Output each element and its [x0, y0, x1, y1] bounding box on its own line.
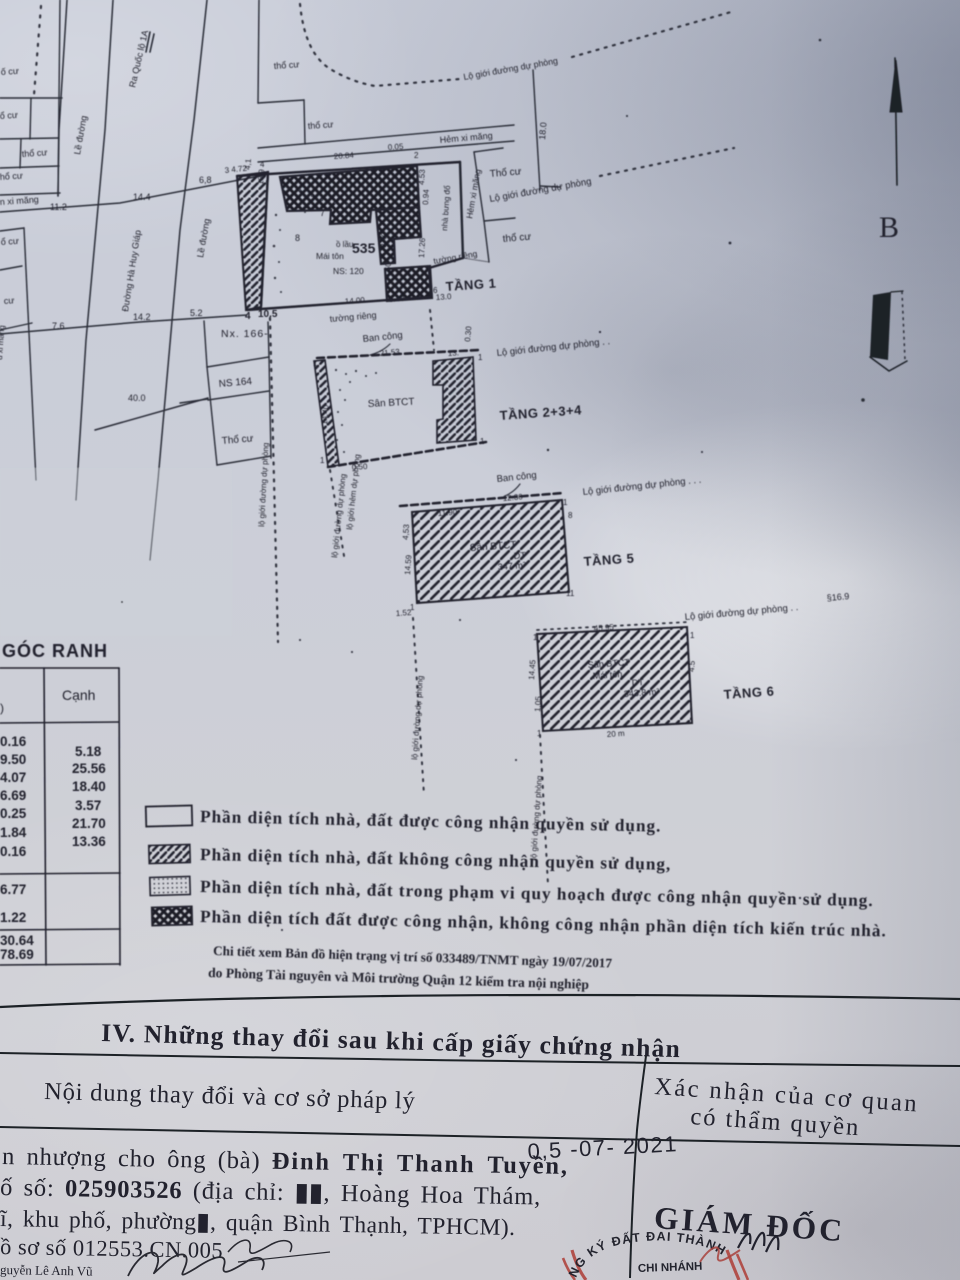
- svg-text:n nhượng cho ông (bà) Đinh Thị: n nhượng cho ông (bà) Đinh Thị Thanh Tuy…: [2, 1143, 569, 1180]
- svg-text:5.18: 5.18: [75, 744, 102, 759]
- svg-text:ổ cư: ổ cư: [0, 110, 18, 121]
- svg-text:4.50: 4.50: [383, 262, 393, 279]
- svg-text:NS: 120: NS: 120: [333, 266, 364, 276]
- svg-text:17.26: 17.26: [417, 237, 427, 258]
- svg-text:0.25: 0.25: [0, 806, 27, 821]
- svg-text:5.2: 5.2: [190, 308, 203, 318]
- svg-text:0.16: 0.16: [0, 734, 27, 749]
- svg-text:535: 535: [352, 240, 376, 256]
- svg-text:11.90: 11.90: [438, 508, 459, 518]
- svg-text:TẦNG 5: TẦNG 5: [583, 550, 635, 568]
- svg-text:2: 2: [414, 151, 419, 160]
- svg-text:30.64: 30.64: [0, 933, 34, 948]
- svg-text:4,1: 4,1: [243, 158, 253, 170]
- svg-text:Cạnh: Cạnh: [62, 687, 95, 703]
- svg-text:4: 4: [260, 160, 265, 169]
- svg-text:thổ cư: thổ cư: [307, 119, 333, 131]
- svg-text:Lộ giới đường dự phòng . . .: Lộ giới đường dự phòng . . .: [582, 475, 702, 498]
- svg-text:nhà bưng đổ: nhà bưng đổ: [440, 185, 452, 231]
- svg-text:CHI NHÁNH: CHI NHÁNH: [638, 1260, 703, 1275]
- svg-text:ồ lầu: ồ lầu: [336, 240, 353, 249]
- svg-text:Lộ giới đường dự phòng . .: Lộ giới đường dự phòng . .: [684, 602, 798, 623]
- svg-text:1: 1: [313, 359, 318, 368]
- svg-text:§16.9: §16.9: [826, 591, 849, 603]
- svg-text:Phần diện tích đất được công n: Phần diện tích đất được công nhận, không…: [200, 907, 887, 940]
- svg-text:): ): [0, 701, 4, 715]
- svg-text:Phần diện tích nhà, đất được c: Phần diện tích nhà, đất được công nhận q…: [200, 807, 662, 836]
- svg-text:thổ cư: thổ cư: [502, 231, 532, 245]
- svg-text:6.77: 6.77: [0, 882, 26, 897]
- svg-text:18.40: 18.40: [72, 779, 106, 794]
- svg-text:ổ cư: ổ cư: [0, 236, 19, 247]
- svg-text:14.00: 14.00: [345, 296, 366, 306]
- svg-text:do Phòng Tài nguyên và Môi trư: do Phòng Tài nguyên và Môi trường Quận 1…: [208, 965, 590, 992]
- svg-text:21.53: 21.53: [379, 347, 400, 358]
- svg-text:1: 1: [478, 353, 483, 362]
- svg-text:lộ giới đường dự phòng: lộ giới đường dự phòng: [410, 675, 425, 760]
- svg-text:Thổ cư: Thổ cư: [221, 432, 254, 447]
- svg-text:Lề đường: Lề đường: [72, 115, 89, 156]
- svg-text:7.6: 7.6: [52, 321, 65, 331]
- svg-text:Phần diện tích nhà, đất không: Phần diện tích nhà, đất không công nhận …: [200, 845, 672, 874]
- svg-text:Mái tôn: Mái tôn: [316, 251, 344, 261]
- svg-text:0.05: 0.05: [388, 142, 405, 152]
- svg-text:1.05: 1.05: [533, 695, 543, 712]
- svg-text:Ban công: Ban công: [496, 470, 537, 485]
- svg-text:1: 1: [563, 498, 568, 507]
- svg-text:0.30: 0.30: [463, 325, 473, 342]
- svg-text:Ban công: Ban công: [362, 330, 403, 345]
- svg-text:ố cư: ố cư: [0, 66, 19, 77]
- svg-text:8: 8: [295, 233, 300, 243]
- svg-text:đ xi măng: đ xi măng: [0, 325, 6, 360]
- svg-text:1: 1: [690, 631, 695, 640]
- svg-text:14.4: 14.4: [133, 192, 151, 202]
- svg-text:13.: 13.: [448, 348, 460, 358]
- svg-text:25.56: 25.56: [72, 761, 106, 776]
- svg-text:14.2: 14.2: [133, 312, 151, 322]
- svg-text:1: 1: [320, 456, 325, 465]
- svg-text:guyễn Lê Anh Vũ: guyễn Lê Anh Vũ: [0, 1262, 93, 1279]
- svg-text:GÓC RANH: GÓC RANH: [2, 640, 108, 661]
- svg-text:14.40: 14.40: [320, 404, 330, 425]
- svg-text:thổ cư: thổ cư: [21, 147, 47, 159]
- svg-text:TẦNG 2+3+4: TẦNG 2+3+4: [499, 402, 582, 423]
- svg-text:0,5 -07- 2021: 0,5 -07- 2021: [527, 1131, 678, 1164]
- svg-text:Sân BTCT: Sân BTCT: [368, 397, 415, 410]
- svg-text:10.5: 10.5: [258, 309, 278, 320]
- svg-text:1: 1: [480, 437, 485, 446]
- svg-text:cư: cư: [3, 295, 14, 306]
- svg-text:Nx. 166-: Nx. 166-: [221, 328, 269, 340]
- svg-text:ố số: 025903526 (địa chỉ: ▮▮,: ố số: 025903526 (địa chỉ: ▮▮, Hoàng Hoa …: [0, 1174, 541, 1210]
- svg-text:Nội dung thay đổi và cơ sở phá: Nội dung thay đổi và cơ sở pháp lý: [44, 1078, 416, 1115]
- svg-text:4.5: 4.5: [687, 660, 697, 672]
- svg-text:Lề đường: Lề đường: [195, 218, 212, 259]
- svg-text:1.52: 1.52: [396, 608, 413, 618]
- svg-text:lộ giới đường dự phòng: lộ giới đường dự phòng: [257, 442, 270, 527]
- svg-text:0.94: 0.94: [421, 189, 431, 206]
- svg-text:0.16: 0.16: [0, 844, 27, 859]
- svg-text:21.70: 21.70: [72, 816, 106, 831]
- svg-text:3.40: 3.40: [379, 232, 389, 249]
- svg-text:thổ cư: thổ cư: [273, 59, 299, 71]
- svg-text:n xi măng: n xi măng: [0, 194, 39, 207]
- svg-text:DT: DT: [631, 677, 644, 688]
- svg-text:1.84: 1.84: [0, 825, 27, 840]
- svg-text:1: 1: [533, 633, 538, 642]
- svg-text:40.0: 40.0: [128, 393, 146, 403]
- svg-text:Lộ giới đường dự phòng . .: Lộ giới đường dự phòng . .: [496, 336, 610, 359]
- svg-text:45.95: 45.95: [594, 623, 615, 633]
- svg-text:lộ giới hẻm dự phòng: lộ giới hẻm dự phòng: [345, 454, 362, 531]
- svg-text:tường riêng: tường riêng: [329, 310, 377, 324]
- svg-text:TẦNG 1: TẦNG 1: [445, 275, 497, 293]
- svg-text:B: B: [879, 211, 899, 244]
- svg-text:12.30: 12.30: [502, 492, 523, 503]
- svg-text:78.69: 78.69: [0, 947, 34, 962]
- svg-text:18.9: 18.9: [256, 168, 266, 185]
- svg-text:6: 6: [433, 286, 438, 295]
- svg-text:6,8: 6,8: [199, 175, 212, 185]
- svg-text:Phần diện tích nhà, đất trong: Phần diện tích nhà, đất trong phạm vi qu…: [200, 877, 874, 910]
- svg-text:18.0: 18.0: [537, 122, 548, 140]
- svg-text:Ra Quốc lộ 1A: Ra Quốc lộ 1A: [127, 29, 150, 88]
- svg-text:Thổ cư: Thổ cư: [489, 165, 522, 180]
- svg-text:4.53: 4.53: [417, 169, 427, 186]
- svg-text:20.84: 20.84: [334, 151, 355, 161]
- svg-text:Đường Hà Huy Giáp: Đường Hà Huy Giáp: [120, 229, 143, 312]
- svg-text:8: 8: [568, 511, 573, 520]
- svg-text:4: 4: [245, 311, 251, 322]
- svg-text:hổ cư: hổ cư: [0, 170, 23, 182]
- svg-text:11: 11: [566, 589, 575, 598]
- svg-text:20 m: 20 m: [607, 729, 626, 739]
- svg-text:ồ sơ số 012553.CN.005: ồ sơ số 012553.CN.005: [0, 1234, 223, 1263]
- svg-text:6.40: 6.40: [389, 294, 406, 304]
- svg-text:13.36: 13.36: [72, 834, 106, 849]
- svg-text:347 m²: 347 m²: [497, 560, 526, 572]
- svg-text:TẦNG 6: TẦNG 6: [723, 683, 775, 701]
- svg-text:14.59: 14.59: [403, 554, 413, 575]
- svg-text:3.57: 3.57: [75, 798, 101, 813]
- svg-text:9.50: 9.50: [0, 752, 26, 767]
- svg-text:11.2: 11.2: [50, 202, 67, 212]
- svg-text:Lộ giới đường dự phòng: Lộ giới đường dự phòng: [463, 55, 559, 81]
- svg-text:tường riêng: tường riêng: [433, 248, 479, 266]
- svg-text:Mái tôn: Mái tôn: [592, 669, 622, 681]
- svg-text:Lộ giới đường dự phòng: Lộ giới đường dự phòng: [489, 176, 593, 205]
- svg-text:4.07: 4.07: [0, 770, 26, 785]
- svg-text:1.22: 1.22: [0, 910, 26, 925]
- svg-text:4,53: 4,53: [401, 523, 411, 540]
- svg-text:6.69: 6.69: [0, 788, 26, 803]
- svg-text:NS 164: NS 164: [218, 376, 253, 390]
- svg-text:14.45: 14.45: [527, 659, 537, 680]
- svg-text:7: 7: [320, 208, 325, 218]
